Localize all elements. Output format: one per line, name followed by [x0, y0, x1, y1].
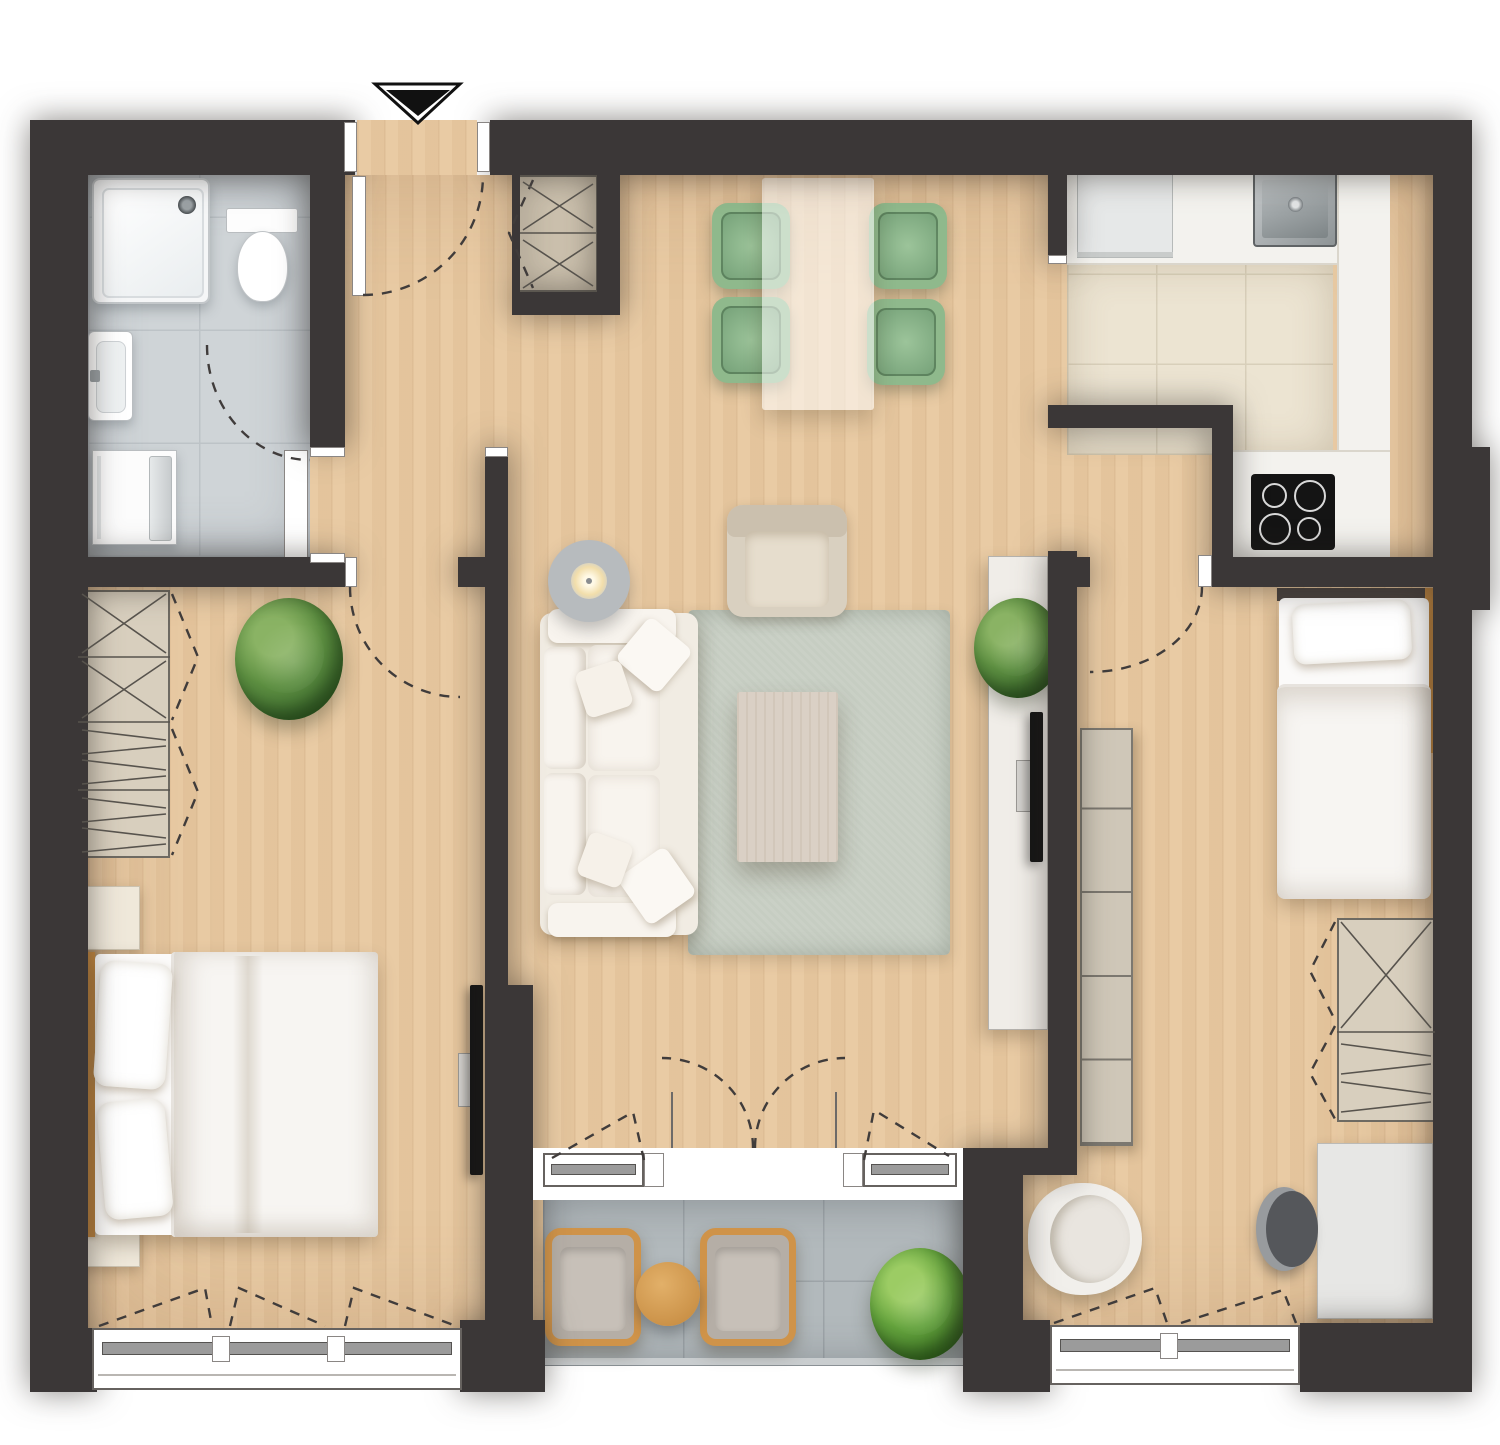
basin-bowl: [96, 341, 126, 413]
wall-bed1-east-lower: [485, 985, 533, 1330]
washer-panel-line: [97, 456, 101, 539]
fridge: [1077, 172, 1173, 258]
wall-left: [30, 120, 88, 1392]
bed-duvet: [171, 952, 378, 1237]
window-sill-line: [1056, 1369, 1294, 1371]
entry-threshold: [357, 120, 477, 175]
nightstand: [80, 886, 140, 950]
desk-chair-seat: [1266, 1191, 1318, 1267]
lamp-bulb: [586, 578, 592, 584]
wall-kitchen-stub: [1048, 175, 1067, 263]
door-jamb: [843, 1153, 863, 1187]
balcony-side-table: [636, 1262, 700, 1326]
induction-hob: [1251, 474, 1335, 550]
shower-tray: [92, 178, 210, 304]
wardrobe-bedroom2: [1337, 918, 1435, 1122]
dining-chair: [867, 299, 945, 385]
kitchen-sink: [1253, 171, 1337, 247]
wall-balcony-east: [963, 1175, 1023, 1392]
wall-bottom-right-block: [1300, 1323, 1472, 1392]
tv: [1030, 712, 1043, 862]
double-bed: [83, 952, 375, 1237]
sink-drain: [1288, 197, 1303, 212]
entry-jamb-left: [344, 122, 357, 172]
desk: [1317, 1143, 1433, 1319]
toilet-bowl: [237, 231, 288, 302]
floor-plan-canvas: [0, 0, 1500, 1445]
balcony-chair: [700, 1228, 796, 1346]
window-glass-bar: [102, 1342, 452, 1355]
coffee-table: [737, 692, 838, 862]
balcony-chair: [545, 1228, 641, 1346]
dining-table: [762, 178, 874, 410]
wall-bottom-left-block: [460, 1320, 545, 1392]
entry-jamb-right: [477, 122, 490, 172]
wall-kitchen-L-vertical: [1212, 405, 1233, 587]
bed1-door-jamb: [345, 557, 357, 587]
wall-bedroom2-west: [1048, 551, 1077, 1148]
wall-kitchen-L-horizontal: [1048, 405, 1233, 428]
wall-right: [1433, 120, 1472, 1342]
kitchen-stub-cap: [1048, 255, 1067, 264]
wall-end-cap: [485, 447, 508, 457]
hob-burner: [1297, 517, 1321, 541]
wash-basin: [88, 331, 133, 421]
armchair-seat: [745, 531, 829, 607]
entry-arrow-icon: [375, 84, 460, 123]
balcony-plant: [870, 1248, 970, 1360]
entry-closet: [518, 175, 598, 292]
fridge-door-line: [1077, 252, 1173, 257]
window-mullion: [1160, 1333, 1178, 1359]
bed2-door-jamb: [1198, 555, 1212, 587]
wall-top-right: [490, 120, 1472, 175]
wall-balcony-east-foot: [1023, 1320, 1050, 1392]
wall-closet-west-edge: [512, 175, 520, 292]
bed-pillow: [93, 960, 174, 1091]
bath-door-cap: [310, 553, 345, 563]
floor-lamp: [548, 540, 630, 622]
armchair-seat: [1050, 1195, 1130, 1283]
basin-tap: [90, 370, 100, 382]
washing-machine: [92, 450, 177, 545]
balcony-edge-rail: [543, 1358, 965, 1365]
bed-pillow: [1292, 599, 1413, 665]
shower-drain: [178, 196, 196, 214]
sofa-back-cushion: [544, 647, 586, 769]
wall-right-bump: [1472, 447, 1490, 610]
hob-burner: [1259, 513, 1291, 545]
wall-kitchen-south: [1233, 557, 1472, 587]
hob-burner: [1294, 480, 1326, 512]
wall-closet-south: [512, 292, 620, 315]
wardrobe-bedroom1: [78, 590, 170, 858]
door-jamb: [644, 1153, 664, 1187]
wall-bed1-east-upper: [485, 447, 508, 985]
window-glass-bar: [551, 1164, 636, 1175]
living-glazing: [533, 1148, 963, 1200]
sofa-back-cushion: [544, 773, 586, 895]
hob-burner: [1262, 483, 1287, 508]
window-mullion: [327, 1336, 345, 1362]
bed-pillow: [96, 1097, 174, 1220]
sofa: [540, 605, 698, 943]
bedroom2-armchair: [1028, 1183, 1142, 1295]
entry-door-leaf: [352, 176, 366, 296]
bed-duvet: [1277, 684, 1431, 899]
window-mullion: [212, 1336, 230, 1362]
living-window-right: [863, 1153, 957, 1187]
bedroom1-window: [92, 1328, 462, 1390]
wall-balcony-connector: [963, 1148, 1077, 1175]
bedroom2-window: [1050, 1325, 1300, 1385]
washer-door: [149, 456, 172, 541]
duvet-fold: [233, 956, 263, 1233]
armchair: [727, 505, 847, 617]
wall-closet-east: [597, 120, 620, 315]
window-sill-line: [98, 1374, 456, 1376]
desk-chair: [1256, 1183, 1322, 1275]
bath-door-cap: [310, 447, 345, 457]
single-bed: [1277, 588, 1435, 900]
wall-bathroom-east: [310, 175, 345, 447]
bathroom-door-leaf: [284, 450, 308, 560]
living-window-left: [543, 1153, 644, 1187]
bedroom1-plant: [235, 598, 343, 720]
wall-bath-bed1-band: [88, 557, 347, 587]
cube-shelf: [1080, 728, 1133, 1146]
dining-chair: [869, 203, 947, 289]
bedroom1-tv: [470, 985, 483, 1175]
window-glass-bar: [871, 1164, 949, 1175]
wall-bedroom2-door-stub: [1077, 557, 1090, 587]
toilet-cistern: [226, 208, 298, 233]
